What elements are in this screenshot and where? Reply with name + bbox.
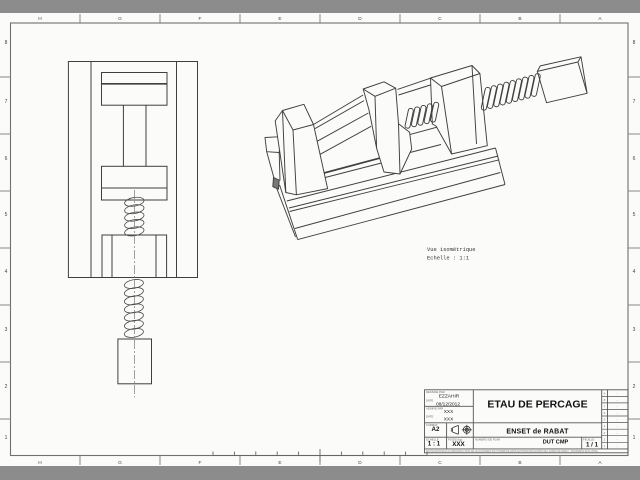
svg-text:-: - bbox=[617, 444, 618, 448]
svg-text:4: 4 bbox=[5, 269, 8, 275]
svg-text:1 : 1: 1 : 1 bbox=[428, 441, 441, 448]
svg-text:TOUTE DIFFUSION OU REPRODUCTIO: TOUTE DIFFUSION OU REPRODUCTION DE CE DO… bbox=[426, 450, 598, 453]
svg-text:3: 3 bbox=[633, 327, 636, 333]
svg-text:F: F bbox=[199, 460, 202, 466]
svg-text:-: - bbox=[617, 391, 618, 395]
svg-text:4: 4 bbox=[633, 269, 636, 275]
svg-text:G: G bbox=[118, 460, 122, 466]
svg-text:5: 5 bbox=[633, 212, 636, 218]
svg-text:-: - bbox=[617, 411, 618, 415]
svg-text:C: C bbox=[438, 460, 442, 466]
svg-text:-: - bbox=[617, 418, 618, 422]
svg-text:-: - bbox=[617, 437, 618, 441]
svg-text:XXX: XXX bbox=[452, 441, 465, 448]
svg-text:E: E bbox=[278, 460, 281, 466]
svg-text:1 / 1: 1 / 1 bbox=[586, 441, 599, 448]
svg-text:5: 5 bbox=[5, 212, 8, 218]
svg-text:H: H bbox=[38, 460, 42, 466]
svg-text:H: H bbox=[38, 16, 42, 22]
svg-text:EZZAHIR: EZZAHIR bbox=[439, 394, 460, 400]
svg-text:DATE: DATE bbox=[426, 399, 433, 403]
svg-text:DATE: DATE bbox=[426, 415, 433, 419]
svg-text:Echelle : 1:1: Echelle : 1:1 bbox=[427, 256, 469, 262]
svg-text:B: B bbox=[518, 16, 521, 22]
svg-text:C: C bbox=[438, 16, 442, 22]
svg-text:D: D bbox=[358, 16, 362, 22]
svg-text:XXX: XXX bbox=[444, 417, 454, 423]
svg-text:XXX: XXX bbox=[444, 409, 454, 415]
svg-text:6: 6 bbox=[5, 156, 8, 162]
svg-text:7: 7 bbox=[5, 99, 8, 105]
svg-text:2: 2 bbox=[5, 384, 8, 390]
svg-text:-: - bbox=[617, 405, 618, 409]
svg-text:1: 1 bbox=[633, 435, 636, 441]
svg-text:E: E bbox=[278, 16, 281, 22]
svg-text:-: - bbox=[617, 431, 618, 435]
svg-text:7: 7 bbox=[633, 99, 636, 105]
svg-text:F: F bbox=[199, 16, 202, 22]
svg-text:8: 8 bbox=[5, 40, 8, 46]
svg-text:6: 6 bbox=[633, 156, 636, 162]
svg-text:Vue isométrique: Vue isométrique bbox=[427, 247, 476, 253]
svg-text:DESSINE PAR: DESSINE PAR bbox=[426, 390, 445, 394]
svg-text:1: 1 bbox=[5, 435, 8, 441]
svg-text:8: 8 bbox=[633, 40, 636, 46]
svg-text:D: D bbox=[358, 460, 362, 466]
svg-text:3: 3 bbox=[5, 327, 8, 333]
svg-text:08/12/2012: 08/12/2012 bbox=[436, 402, 460, 408]
svg-text:-: - bbox=[617, 398, 618, 402]
svg-text:2: 2 bbox=[633, 384, 636, 390]
svg-text:G: G bbox=[118, 16, 122, 22]
svg-text:A2: A2 bbox=[432, 426, 440, 433]
svg-text:-: - bbox=[617, 424, 618, 428]
svg-text:B: B bbox=[518, 460, 521, 466]
svg-text:DUT CMP: DUT CMP bbox=[543, 439, 569, 445]
svg-text:ENSET de RABAT: ENSET de RABAT bbox=[506, 429, 569, 436]
svg-text:ETAU DE PERCAGE: ETAU DE PERCAGE bbox=[487, 399, 587, 411]
svg-text:NUMERO DE PLAN: NUMERO DE PLAN bbox=[475, 438, 500, 442]
